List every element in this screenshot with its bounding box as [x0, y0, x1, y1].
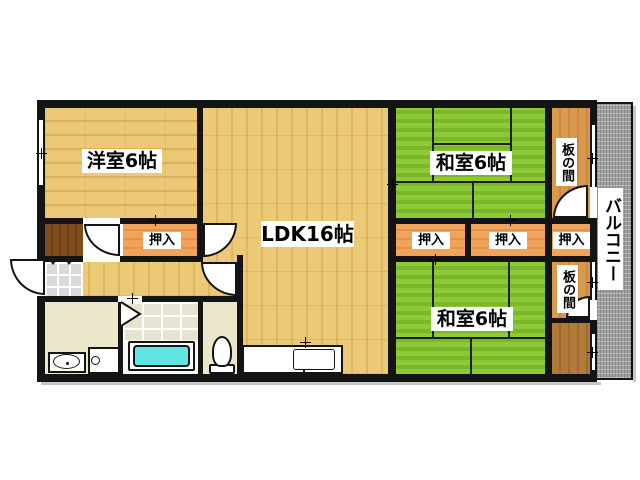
- tick-mark: [387, 179, 398, 190]
- washing-machine-drain: [91, 356, 100, 365]
- genkan-step-mark: [64, 258, 74, 265]
- tick-mark: [587, 277, 598, 288]
- wall-ldk-japanese: [388, 100, 396, 382]
- wall-outer-left: [37, 100, 45, 120]
- toilet-bowl: [212, 336, 232, 367]
- tick-mark: [587, 347, 598, 358]
- tick-mark: [505, 215, 516, 226]
- wall-outer-right: [590, 100, 597, 125]
- tick-mark: [150, 215, 161, 226]
- tick-mark: [127, 293, 138, 304]
- tatami-line: [470, 339, 472, 374]
- tick-mark: [430, 254, 441, 265]
- wall-outer-right: [590, 370, 597, 382]
- itanoma-top-label: 板の間: [556, 138, 577, 186]
- wall-itanoma-storage: [552, 318, 590, 323]
- washbasin-drain: [66, 362, 69, 365]
- closet-hall-label: 押入: [143, 232, 181, 249]
- balcony-door-opening-1: [590, 187, 597, 222]
- wall-bath-toilet: [198, 302, 203, 374]
- tick-mark: [300, 337, 311, 348]
- tatami-line: [396, 181, 545, 183]
- wall-closet-divider: [465, 224, 471, 256]
- closet-right-3-label: 押入: [553, 232, 590, 249]
- entrance-door-arc: [10, 259, 45, 295]
- genkan-step-mark: [48, 258, 58, 265]
- balcony-door-opening-2: [590, 300, 597, 320]
- storage-closet-floor: [552, 323, 590, 374]
- bathroom-folding-door-icon: [119, 301, 143, 327]
- plan-shadow-right: [633, 106, 636, 382]
- shoe-cabinet: [45, 224, 83, 256]
- tatami-line: [472, 183, 474, 218]
- wall-corridor-south: [37, 296, 118, 302]
- ldk-label: LDK16帖: [261, 221, 354, 247]
- wall-western-south: [37, 218, 83, 224]
- closet-right-1-label: 押入: [412, 232, 450, 249]
- floor-plan: 洋室6帖 LDK16帖 和室6帖 和室6帖 押入 押入 押入 押入 板の間 板の…: [0, 0, 640, 480]
- tick-mark: [587, 153, 598, 164]
- tick-mark: [36, 148, 47, 159]
- wall-outer-bottom: [37, 374, 597, 382]
- wall-outer-right: [590, 320, 597, 334]
- closet-right-2-label: 押入: [489, 232, 527, 249]
- kitchen-sink-drain-line: [303, 369, 305, 376]
- wall-outer-left: [37, 296, 45, 382]
- wall-corridor-south: [142, 296, 243, 302]
- wall-outer-top: [37, 100, 597, 108]
- itanoma-bottom-label: 板の間: [557, 265, 578, 313]
- wall-western-south: [120, 218, 203, 224]
- bathtub: [133, 345, 190, 367]
- western-room-door-arc: [84, 224, 120, 256]
- japanese-room-bottom-label: 和室6帖: [431, 307, 513, 331]
- plan-shadow-bottom: [41, 382, 601, 385]
- tatami-line: [432, 143, 512, 145]
- kitchen-sink: [293, 349, 335, 370]
- wall-closet-row-top: [388, 218, 597, 224]
- wall-closet-row-bottom: [388, 256, 597, 262]
- genkan-tile: [45, 262, 83, 296]
- western-room-label: 洋室6帖: [82, 149, 162, 173]
- wall-closet-strip: [120, 256, 203, 262]
- japanese-room-top-label: 和室6帖: [430, 151, 512, 175]
- balcony-label: バルコニー: [598, 188, 623, 290]
- wall-japanese-itanoma: [545, 100, 552, 382]
